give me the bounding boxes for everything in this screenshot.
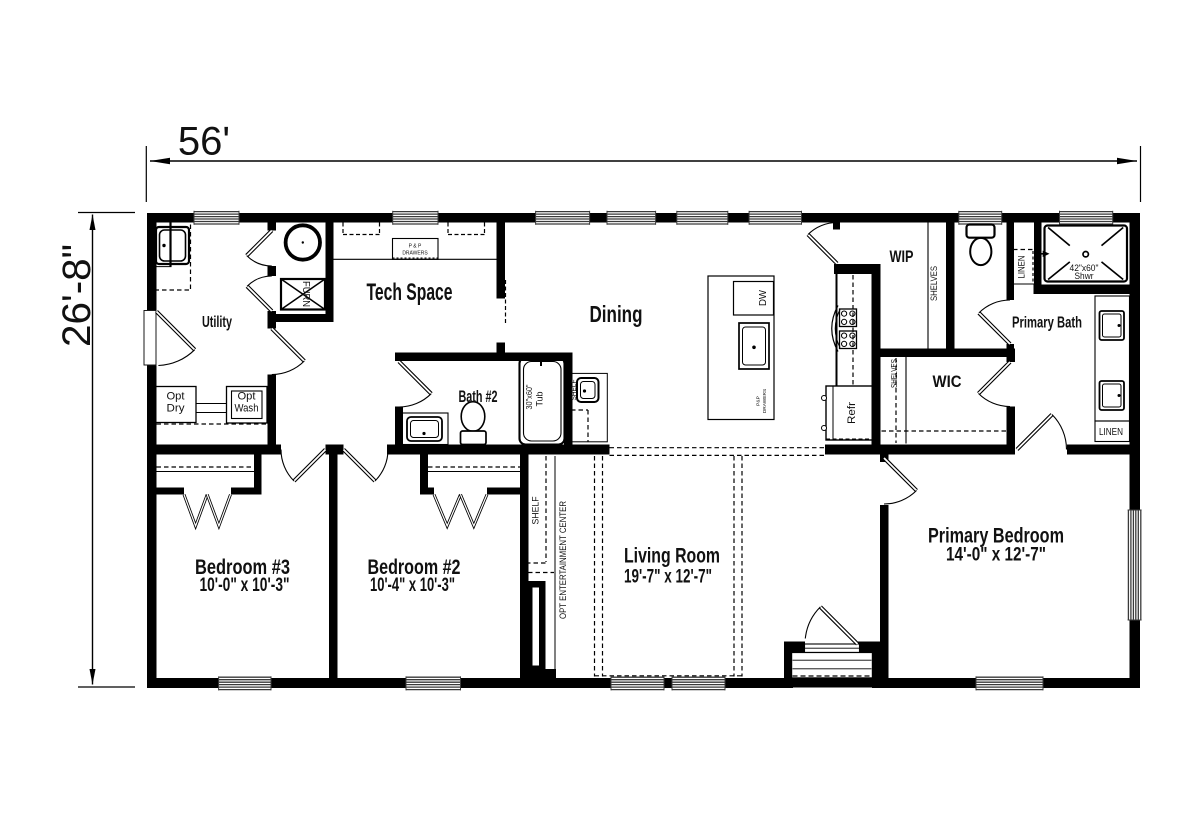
svg-text:Opt: Opt: [238, 391, 256, 403]
svg-text:DRAWERS: DRAWERS: [762, 389, 768, 413]
svg-text:Tech Space: Tech Space: [367, 279, 453, 306]
svg-text:Tub: Tub: [535, 392, 546, 407]
svg-text:SHELVES: SHELVES: [929, 266, 940, 301]
svg-text:Wash: Wash: [235, 403, 259, 415]
svg-text:DW: DW: [757, 290, 769, 306]
svg-text:SHELVES: SHELVES: [890, 359, 899, 388]
svg-text:Bath #2: Bath #2: [459, 387, 498, 406]
svg-text:OPT ENTERTAINMENT CENTER: OPT ENTERTAINMENT CENTER: [558, 501, 568, 619]
svg-text:14'-0" x 12'-7": 14'-0" x 12'-7": [946, 545, 1046, 566]
svg-text:P&P: P&P: [756, 396, 762, 406]
svg-text:Primary Bath: Primary Bath: [1012, 315, 1082, 332]
svg-text:26'-8": 26'-8": [55, 244, 99, 347]
svg-text:19'-7" x 12'-7": 19'-7" x 12'-7": [624, 567, 712, 588]
svg-text:SHELF: SHELF: [569, 379, 578, 400]
svg-text:WIC: WIC: [933, 372, 962, 391]
svg-text:Refr: Refr: [846, 402, 858, 424]
svg-text:Shwr: Shwr: [1075, 271, 1094, 281]
svg-text:Utility: Utility: [202, 314, 232, 331]
svg-text:DRAWERS: DRAWERS: [402, 251, 428, 257]
svg-text:Dry: Dry: [167, 403, 186, 415]
svg-text:LINEN: LINEN: [1099, 427, 1123, 438]
svg-text:WIP: WIP: [890, 247, 914, 266]
svg-text:FURN: FURN: [300, 281, 311, 307]
svg-text:10'-0" x 10'-3": 10'-0" x 10'-3": [200, 575, 290, 596]
svg-text:30"x60": 30"x60": [524, 385, 534, 410]
svg-text:Opt: Opt: [167, 391, 185, 403]
svg-text:Dining: Dining: [590, 301, 643, 327]
svg-text:10'-4" x 10'-3": 10'-4" x 10'-3": [370, 575, 455, 596]
svg-text:P & P: P & P: [409, 244, 422, 250]
svg-text:56': 56': [178, 120, 230, 164]
svg-text:Living Room: Living Room: [624, 545, 720, 568]
svg-text:LINEN: LINEN: [1017, 256, 1027, 279]
svg-text:SHELF: SHELF: [531, 496, 541, 524]
